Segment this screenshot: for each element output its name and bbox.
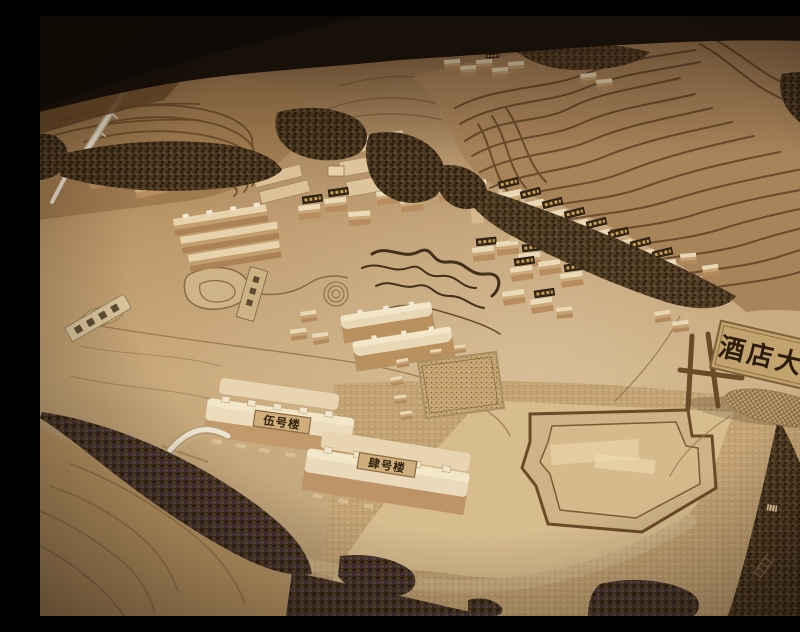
model-scene: 伍号楼 肆号楼 xyxy=(40,16,800,616)
scale-model-photo: 伍号楼 肆号楼 xyxy=(40,16,800,616)
vignette-overlay xyxy=(40,16,800,616)
